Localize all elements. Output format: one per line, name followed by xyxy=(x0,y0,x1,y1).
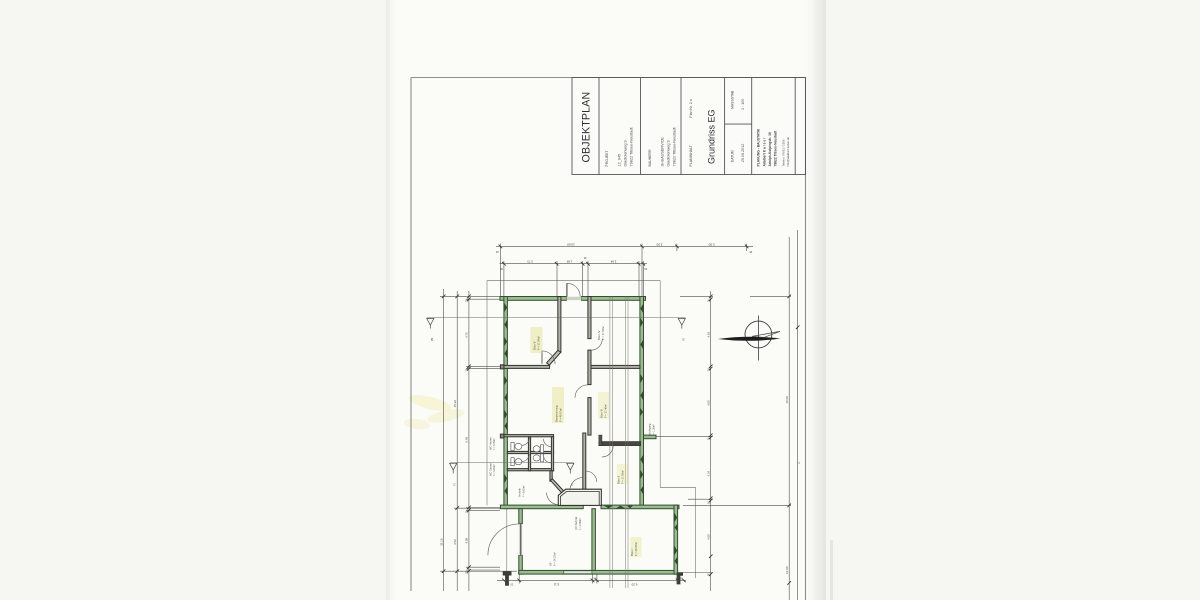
svg-text:VF: VF xyxy=(549,562,553,566)
svg-text:DATUM: DATUM xyxy=(731,150,735,162)
svg-text:(FI)-Technik: (FI)-Technik xyxy=(575,516,578,530)
svg-text:Büro III: Büro III xyxy=(600,409,604,418)
svg-text:Gladiolenweg 9: Gladiolenweg 9 xyxy=(624,140,628,166)
svg-text:OBJEKTPLAN: OBJEKTPLAN xyxy=(580,92,592,163)
svg-text:4.00: 4.00 xyxy=(706,534,710,540)
svg-text:12_045: 12_045 xyxy=(618,154,622,167)
svg-text:MASSSTAB: MASSSTAB xyxy=(731,90,735,109)
svg-text:2.50: 2.50 xyxy=(656,242,662,246)
svg-text:5.11: 5.11 xyxy=(553,582,559,586)
svg-text:F = 17.40m²: F = 17.40m² xyxy=(604,404,608,418)
svg-text:4.82: 4.82 xyxy=(706,331,710,337)
svg-text:F = 40.07m²: F = 40.07m² xyxy=(559,408,563,422)
svg-text:F = 26.35m²: F = 26.35m² xyxy=(634,542,638,556)
svg-text:4.34: 4.34 xyxy=(706,470,710,476)
svg-text:Büro I: Büro I xyxy=(630,548,634,556)
svg-text:15.00: 15.00 xyxy=(785,396,789,404)
svg-text:F = 17.09m²: F = 17.09m² xyxy=(537,336,541,350)
svg-text:info@adalbert-kaiser.de: info@adalbert-kaiser.de xyxy=(786,136,790,166)
svg-text:Technik: Technik xyxy=(518,488,522,497)
svg-text:Durchgang: Durchgang xyxy=(649,423,652,436)
svg-text:35.18: 35.18 xyxy=(439,538,443,546)
svg-text:Adalbert K a i s e r: Adalbert K a i s e r xyxy=(763,137,767,167)
svg-text:4.80: 4.80 xyxy=(706,400,710,406)
svg-text:4.08: 4.08 xyxy=(465,537,469,543)
svg-text:PROJEKT: PROJEKT xyxy=(605,149,609,166)
svg-text:10.90: 10.90 xyxy=(785,566,789,574)
svg-text:Büro V: Büro V xyxy=(533,341,537,350)
svg-text:3.64: 3.64 xyxy=(610,260,616,264)
svg-text:79822 Titisee-Neustadt: 79822 Titisee-Neustadt xyxy=(774,130,778,167)
svg-text:Grundriss EG: Grundriss EG xyxy=(707,109,717,164)
svg-text:Gladiolenweg 9: Gladiolenweg 9 xyxy=(667,140,671,166)
svg-text:Telefon: 07651 / 1506: Telefon: 07651 / 1506 xyxy=(782,139,786,166)
svg-text:PLANINHALT: PLANINHALT xyxy=(689,144,693,166)
svg-text:PLANUNG - BAUSTATIK: PLANUNG - BAUSTATIK xyxy=(757,128,761,166)
svg-text:5.00: 5.00 xyxy=(708,242,714,246)
svg-text:1 : 100: 1 : 100 xyxy=(741,99,745,110)
svg-text:F = 3.45m²: F = 3.45m² xyxy=(493,438,496,450)
svg-text:F = 1.36m²: F = 1.36m² xyxy=(653,424,656,436)
svg-text:10.08: 10.08 xyxy=(567,242,575,246)
svg-text:4.72: 4.72 xyxy=(465,332,469,338)
svg-text:Adolph-Kolpingstr. 16: Adolph-Kolpingstr. 16 xyxy=(768,132,772,166)
svg-text:29.06.2012: 29.06.2012 xyxy=(741,144,745,162)
svg-text:F = 24.31m²: F = 24.31m² xyxy=(553,552,557,566)
svg-text:F = 6.62m²: F = 6.62m² xyxy=(523,485,526,497)
svg-text:15.20: 15.20 xyxy=(453,400,457,408)
svg-text:1.88: 1.88 xyxy=(566,260,572,264)
svg-text:Büro IV: Büro IV xyxy=(597,331,601,340)
svg-text:F = 17.05m²: F = 17.05m² xyxy=(621,470,625,484)
svg-text:F = 3.92m²: F = 3.92m² xyxy=(493,464,496,476)
svg-text:Besprechung: Besprechung xyxy=(555,405,559,422)
svg-text:6.20: 6.20 xyxy=(631,582,637,586)
svg-text:F = 17.54m²: F = 17.54m² xyxy=(601,326,605,340)
svg-text:sk-BAUSERVICE: sk-BAUSERVICE xyxy=(661,137,665,167)
svg-text:79822 Titisee-Neustadt: 79822 Titisee-Neustadt xyxy=(673,127,677,167)
svg-text:3.73: 3.73 xyxy=(527,260,533,264)
svg-text:79822 Titisee-Neustadt: 79822 Titisee-Neustadt xyxy=(630,127,634,167)
svg-text:Büro II: Büro II xyxy=(617,476,621,484)
svg-text:4.52: 4.52 xyxy=(453,539,457,545)
svg-text:Plan Nr. 2 a: Plan Nr. 2 a xyxy=(689,99,693,117)
svg-text:F = 2.98m²: F = 2.98m² xyxy=(579,518,582,530)
svg-text:BAUHERR: BAUHERR xyxy=(648,149,652,167)
svg-text:9.98: 9.98 xyxy=(465,436,469,442)
